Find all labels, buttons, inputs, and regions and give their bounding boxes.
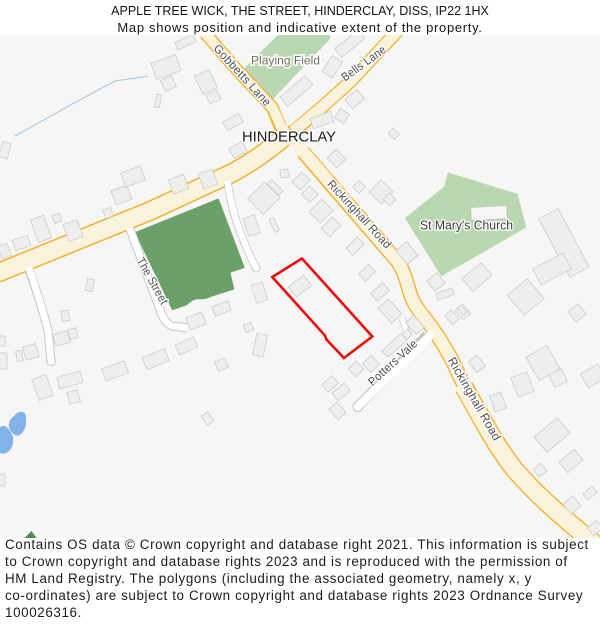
svg-text:HINDERCLAY: HINDERCLAY xyxy=(242,129,336,146)
svg-text:St Mary's Church: St Mary's Church xyxy=(420,218,513,233)
svg-text:Playing Field: Playing Field xyxy=(251,56,320,68)
